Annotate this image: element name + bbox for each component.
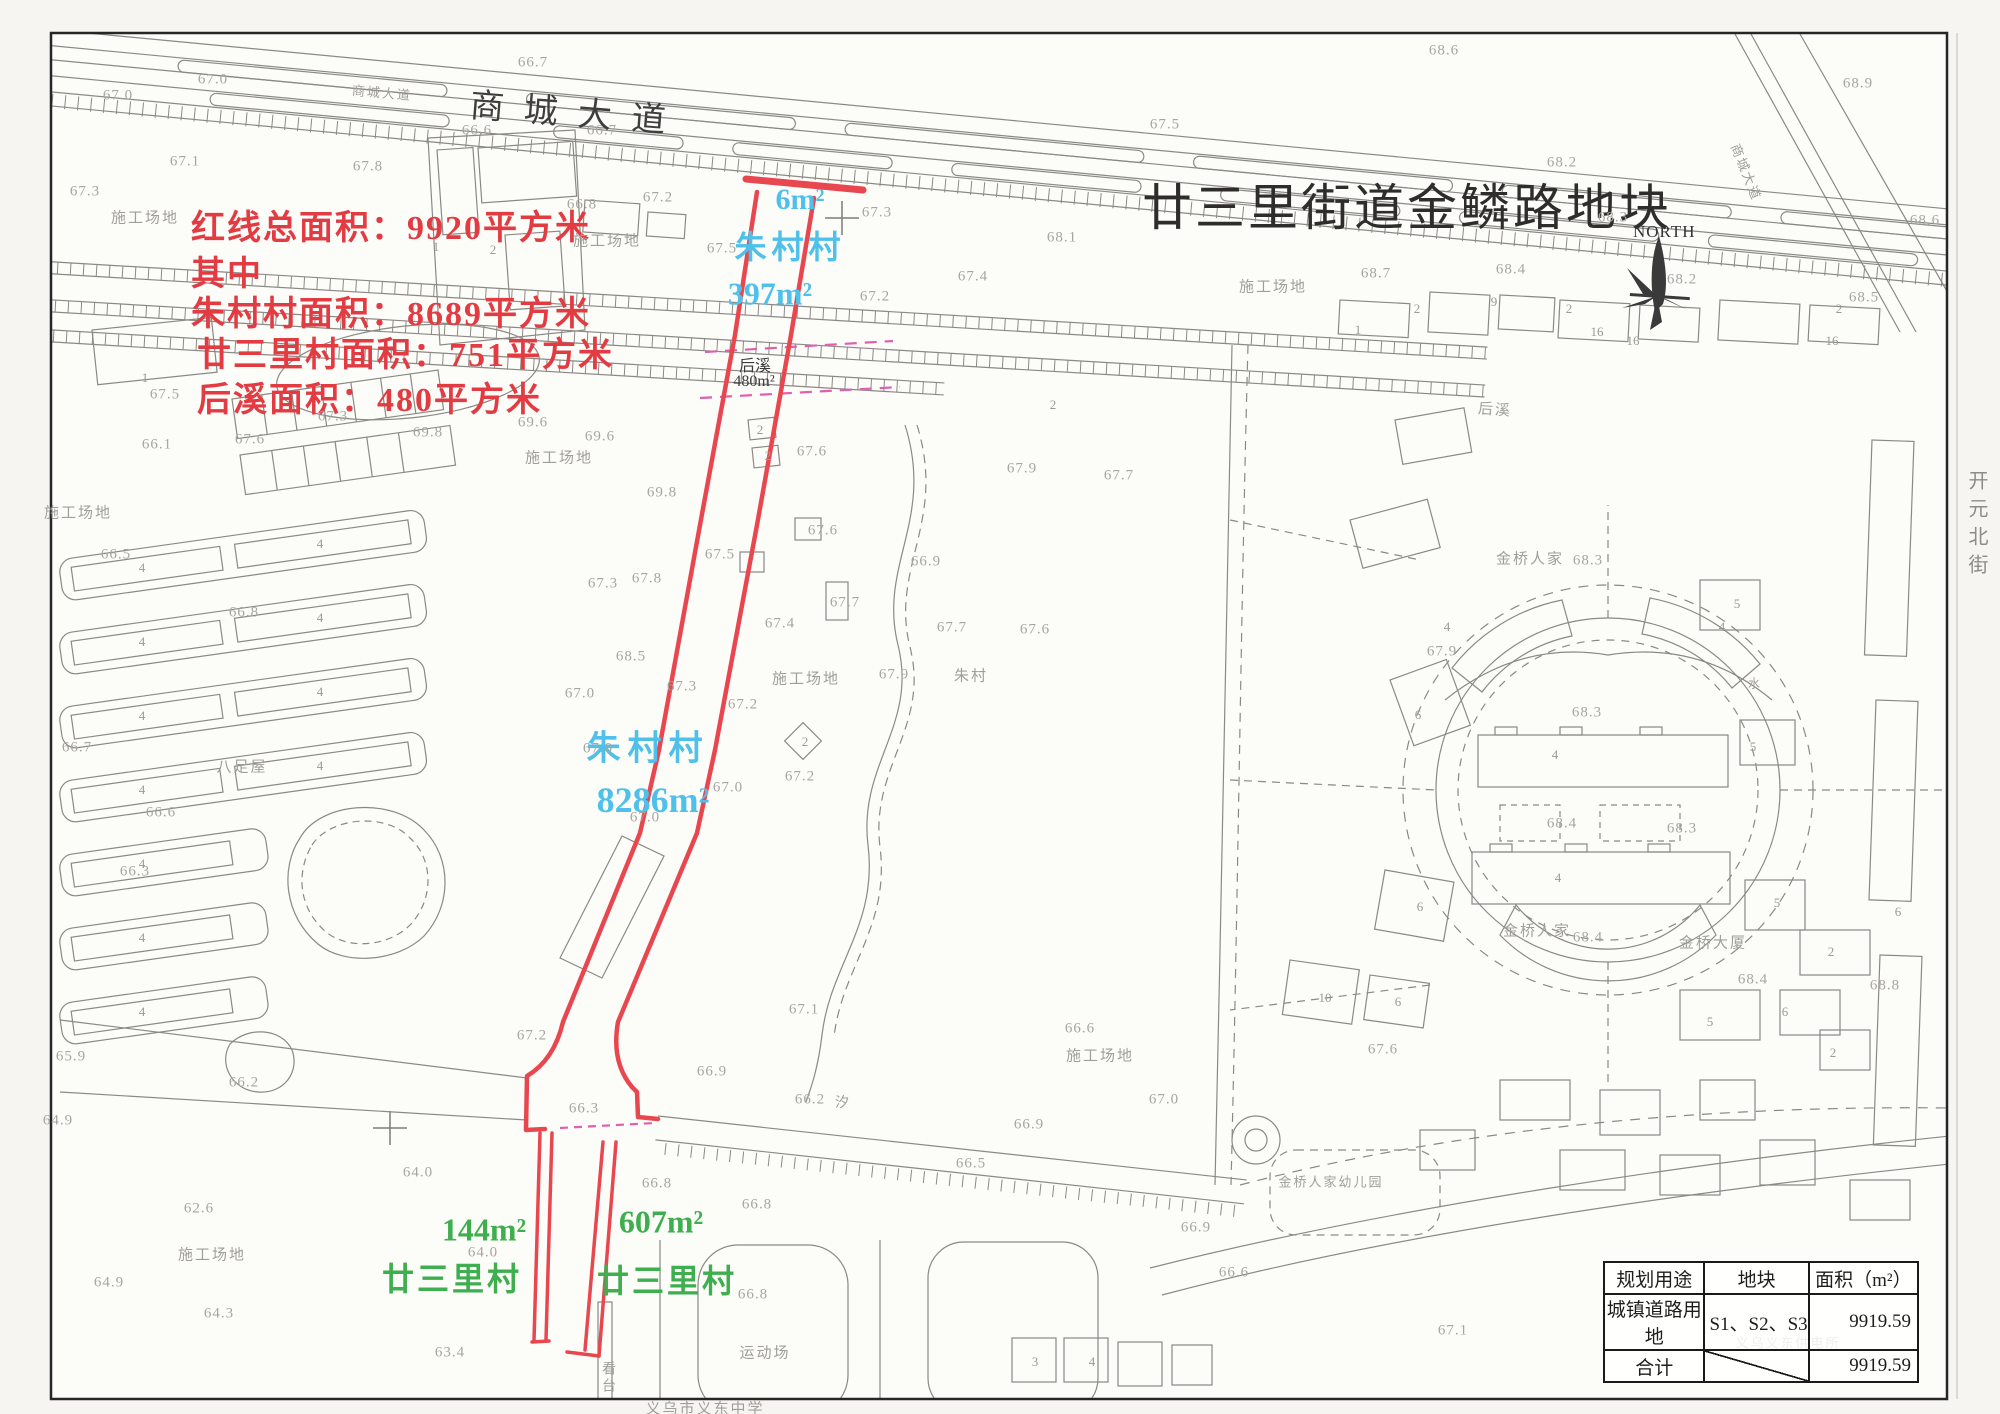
building-number: 1	[433, 239, 440, 255]
building-number: 16	[1591, 324, 1604, 340]
parcel-area-label: 144m²	[442, 1212, 526, 1249]
building-number: 16	[1826, 333, 1839, 349]
map-label: 金桥人家幼儿园	[1278, 1172, 1383, 1191]
elevation-label: 66.6	[1219, 1265, 1249, 1282]
map-label: 朱村	[954, 665, 988, 686]
elevation-label: 67.1	[789, 1002, 819, 1019]
map-label: 后溪	[1477, 397, 1512, 420]
building-number: 2	[765, 448, 772, 464]
elevation-label: 67.7	[1104, 468, 1134, 485]
elevation-label: 69.6	[585, 429, 615, 446]
elevation-label: 67.2	[728, 697, 758, 714]
elevation-label: 67.4	[958, 269, 988, 286]
building-number: 4	[1444, 619, 1451, 635]
elevation-label: 68.4	[1573, 930, 1603, 947]
building-number: 4	[1555, 870, 1562, 886]
elevation-label: 67.5	[705, 547, 735, 564]
elevation-label: 67.9	[1427, 644, 1457, 661]
building-number: 1	[1355, 322, 1362, 338]
building-number: 16	[1627, 333, 1640, 349]
map-label: 施工场地	[1066, 1045, 1134, 1066]
building-number: 4	[1552, 747, 1559, 763]
building-number: 4	[317, 610, 324, 626]
elevation-label: 67.7	[937, 620, 967, 637]
elevation-label: 66.8	[642, 1176, 672, 1193]
map-label: 施工场地	[573, 230, 641, 251]
elevation-label: 68.3	[1667, 821, 1697, 838]
building-number: 2	[1414, 301, 1421, 317]
elevation-label: 66.9	[911, 554, 941, 571]
building-number: 4	[139, 782, 146, 798]
building-number: 6	[1782, 1004, 1789, 1020]
parcel-area-label: 6m²	[776, 183, 825, 217]
elevation-label: 67.6	[808, 523, 838, 540]
table-cell-area: 9919.59	[1809, 1294, 1918, 1350]
elevation-label: 67.2	[860, 289, 890, 306]
elevation-label: 66.6	[462, 123, 492, 140]
map-title: 廿三里街道金鳞路地块	[1142, 168, 1672, 240]
building-number: 2	[1050, 397, 1057, 413]
elevation-label: 66.3	[569, 1101, 599, 1118]
elevation-label: 66.8	[567, 197, 597, 214]
elevation-label: 62.6	[184, 1201, 214, 1218]
elevation-label: 68.3	[1598, 210, 1628, 227]
elevation-label: 68.4	[1738, 972, 1768, 989]
elevation-label: 69.6	[518, 415, 548, 432]
elevation-label: 67.2	[643, 190, 673, 207]
elevation-label: 68.7	[1361, 266, 1391, 283]
elevation-label: 67.1	[1438, 1323, 1468, 1340]
elevation-label: 67.3	[318, 409, 348, 426]
building-number: 4	[1719, 619, 1726, 635]
elevation-label: 66.7	[62, 740, 92, 757]
elevation-label: 67.4	[765, 616, 795, 633]
building-number: 1	[142, 370, 149, 386]
elevation-label: 69.8	[647, 485, 677, 502]
elevation-label: 66.9	[1014, 1117, 1044, 1134]
elevation-label: 68.8	[1870, 978, 1900, 995]
elevation-label: 68.2	[1547, 155, 1577, 172]
map-label: 运动场	[739, 1342, 790, 1363]
map-label: 水	[1748, 675, 1762, 692]
elevation-label: 66.7	[587, 123, 617, 140]
scanned-planning-map: 廿三里街道金鳞路地块 商城大道 NORTH 开元北街 红线总面积：9920平方米…	[0, 0, 2000, 1414]
building-number: 5	[1774, 895, 1781, 911]
elevation-label: 67.2	[785, 769, 815, 786]
elevation-label: 66.2	[795, 1092, 825, 1109]
table-cell-total-area: 9919.59	[1809, 1350, 1918, 1382]
elevation-label: 67.8	[353, 159, 383, 176]
building-number: 2	[802, 734, 809, 750]
building-number: 9	[1491, 294, 1498, 310]
elevation-label: 64.9	[43, 1113, 73, 1130]
elevation-label: 67.9	[879, 667, 909, 684]
building-number: 4	[139, 708, 146, 724]
elevation-label: 68.5	[616, 649, 646, 666]
table-header-parcel: 地块	[1704, 1262, 1808, 1294]
building-number: 6	[1895, 904, 1902, 920]
elevation-label: 67.3	[667, 679, 697, 696]
elevation-label: 66.2	[229, 1075, 259, 1092]
building-number: 2	[757, 422, 764, 438]
elevation-label: 66.9	[1181, 1220, 1211, 1237]
elevation-label: 64.9	[94, 1275, 124, 1292]
elevation-label: 66.9	[697, 1064, 727, 1081]
map-label: 施工场地	[44, 502, 112, 523]
map-label: 看台	[597, 1361, 617, 1395]
elevation-label: 64.0	[468, 1245, 498, 1262]
elevation-label: 67.6	[797, 444, 827, 461]
elevation-label: 67.9	[1007, 461, 1037, 478]
map-label: 金桥大厦	[1679, 932, 1747, 953]
building-number: 10	[1319, 990, 1332, 1006]
map-label: 施工场地	[525, 447, 593, 468]
elevation-label: 68.6	[1910, 213, 1940, 230]
elevation-label: 67.3	[862, 205, 892, 222]
annotation-line: 廿三里村面积：751平方米	[197, 327, 614, 376]
annotation-line: 后溪面积：480平方米	[197, 372, 542, 421]
table-cell-total-label: 合计	[1604, 1350, 1704, 1382]
elevation-label: 67.6	[235, 432, 265, 449]
elevation-label: 66.8	[738, 1287, 768, 1304]
building-number: 4	[317, 758, 324, 774]
stream-area-label: 480m²	[733, 373, 774, 391]
elevation-label: 64.0	[403, 1165, 433, 1182]
building-number: 4	[139, 560, 146, 576]
building-number: 2	[1828, 944, 1835, 960]
map-label: 施工场地	[178, 1244, 246, 1265]
building-number: 5	[1734, 596, 1741, 612]
elevation-label: 68.4	[1547, 816, 1577, 833]
elevation-label: 66.5	[956, 1156, 986, 1173]
building-number: 4	[317, 684, 324, 700]
building-number: 2	[1566, 301, 1573, 317]
elevation-label: 67.0	[1149, 1092, 1179, 1109]
building-number: 4	[139, 1004, 146, 1020]
building-number: 2	[1836, 301, 1843, 317]
elevation-label: 66.6	[146, 805, 176, 822]
elevation-label: 64.3	[204, 1306, 234, 1323]
building-number: 4	[1089, 1354, 1096, 1370]
elevation-label: 68.3	[1573, 553, 1603, 570]
building-number: 3	[1032, 1354, 1039, 1370]
building-number: 6	[1415, 707, 1422, 723]
elevation-label: 67.0	[713, 780, 743, 797]
map-label: 施工场地	[772, 668, 840, 689]
elevation-label: 67.0	[198, 72, 228, 89]
elevation-label: 66.1	[142, 437, 172, 454]
parcel-area-label: 607m²	[619, 1204, 703, 1241]
elevation-label: 66.8	[742, 1197, 772, 1214]
elevation-label: 66.7	[518, 55, 548, 72]
building-number: 2	[1830, 1045, 1837, 1061]
elevation-label: 67.3	[588, 576, 618, 593]
elevation-label: 67.5	[150, 387, 180, 404]
map-label: 施工场地	[111, 207, 179, 228]
village-label-zhucun: 朱村村	[734, 222, 845, 268]
building-number: 2	[490, 242, 497, 258]
planning-table: 规划用途 地块 面积（m²） 城镇道路用地 S1、S2、S3 9919.59 合…	[1603, 1261, 1919, 1383]
building-number: 4	[139, 634, 146, 650]
map-label: 金桥人家	[1496, 548, 1564, 569]
village-label-ganshili: 廿三里村	[382, 1254, 522, 1300]
table-cell-diagonal	[1704, 1350, 1808, 1382]
elevation-label: 65.9	[56, 1049, 86, 1066]
building-number: 6	[1395, 994, 1402, 1010]
building-number: 4	[139, 856, 146, 872]
map-label: 汐	[835, 1092, 851, 1112]
elevation-label: 67.0	[565, 686, 595, 703]
table-cell-parcel: S1、S2、S3	[1704, 1294, 1808, 1350]
elevation-label: 67.5	[707, 241, 737, 258]
elevation-label: 68.3	[1572, 705, 1602, 722]
elevation-label: 68.6	[1429, 43, 1459, 60]
elevation-label: 67.6	[1020, 622, 1050, 639]
elevation-label: 67.8	[632, 571, 662, 588]
elevation-label: 67.7	[830, 595, 860, 612]
elevation-label: 69.8	[413, 425, 443, 442]
annotation-line: 红线总面积：9920平方米	[191, 200, 591, 249]
elevation-label: 67.0	[583, 741, 613, 758]
elevation-label: 68.2	[1667, 272, 1697, 289]
elevation-label: 68.5	[1849, 290, 1879, 307]
table-cell-use: 城镇道路用地	[1604, 1294, 1704, 1350]
elevation-label: 66.5	[101, 547, 131, 564]
building-number: 6	[1417, 899, 1424, 915]
map-label: 金桥人家	[1503, 920, 1571, 941]
building-number: 4	[317, 536, 324, 552]
elevation-label: 68.1	[1047, 230, 1077, 247]
map-label: 施工场地	[1239, 276, 1307, 297]
building-number: 4	[139, 930, 146, 946]
elevation-label: 68.4	[1496, 262, 1526, 279]
building-number: 5	[1750, 739, 1757, 755]
elevation-label: 66.8	[229, 605, 259, 622]
elevation-label: 68.9	[1843, 76, 1873, 93]
elevation-label: 67.6	[1368, 1042, 1398, 1059]
elevation-label: 67.0	[630, 810, 660, 827]
elevation-label: 67.3	[70, 184, 100, 201]
parcel-area-label: 397m²	[728, 276, 812, 313]
elevation-label: 66.6	[1065, 1021, 1095, 1038]
street-label-kaiyuan: 开元北街	[1962, 470, 1991, 582]
map-label: 八足屋	[216, 756, 267, 777]
table-header-use: 规划用途	[1604, 1262, 1704, 1294]
north-label: NORTH	[1633, 222, 1696, 242]
elevation-label: 67.1	[170, 154, 200, 171]
elevation-label: 67.0	[103, 88, 133, 105]
village-label-ganshili: 廿三里村	[597, 1256, 737, 1302]
map-label: 义乌市义东中学	[645, 1398, 764, 1414]
elevation-label: 63.4	[435, 1345, 465, 1362]
table-header-area: 面积（m²）	[1809, 1262, 1918, 1294]
elevation-label: 67.2	[517, 1028, 547, 1045]
building-number: 5	[1707, 1014, 1714, 1030]
elevation-label: 67.5	[1150, 117, 1180, 134]
